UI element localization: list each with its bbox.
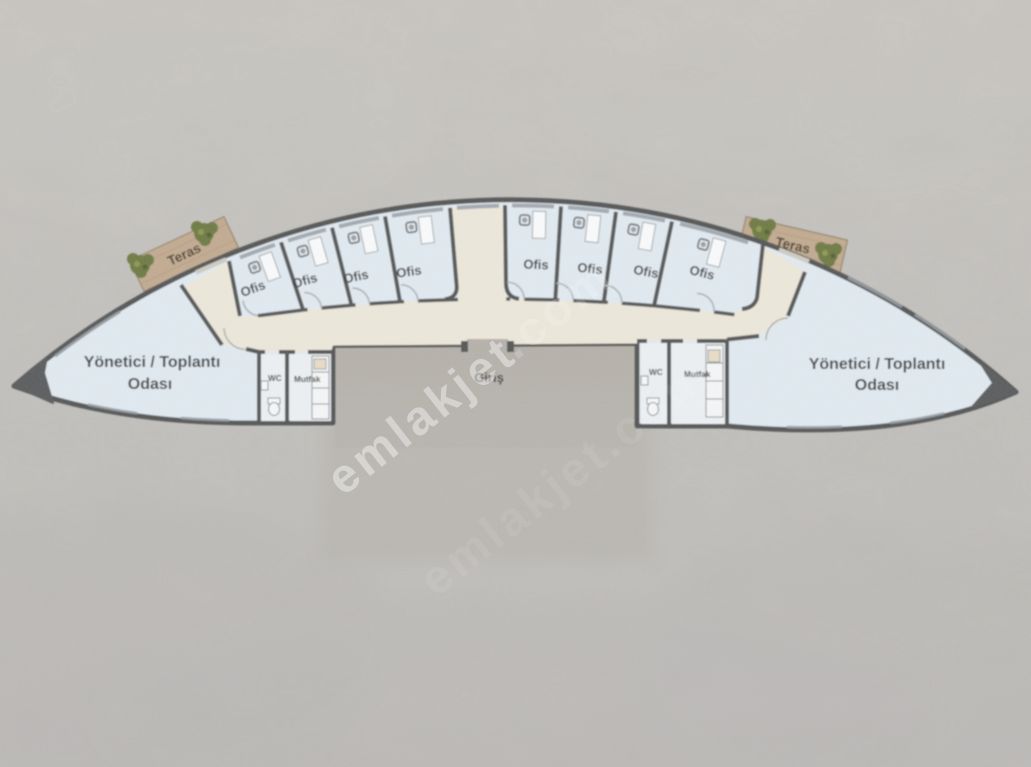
svg-text:Yönetici / Toplantı: Yönetici / Toplantı bbox=[809, 356, 946, 373]
svg-text:Odası: Odası bbox=[855, 377, 899, 394]
svg-text:Ofis: Ofis bbox=[523, 257, 549, 273]
svg-text:Mutfak: Mutfak bbox=[294, 375, 321, 384]
svg-text:Yönetici / Toplantı: Yönetici / Toplantı bbox=[84, 354, 221, 371]
svg-text:WC: WC bbox=[268, 374, 282, 383]
svg-text:Odası: Odası bbox=[128, 376, 172, 393]
